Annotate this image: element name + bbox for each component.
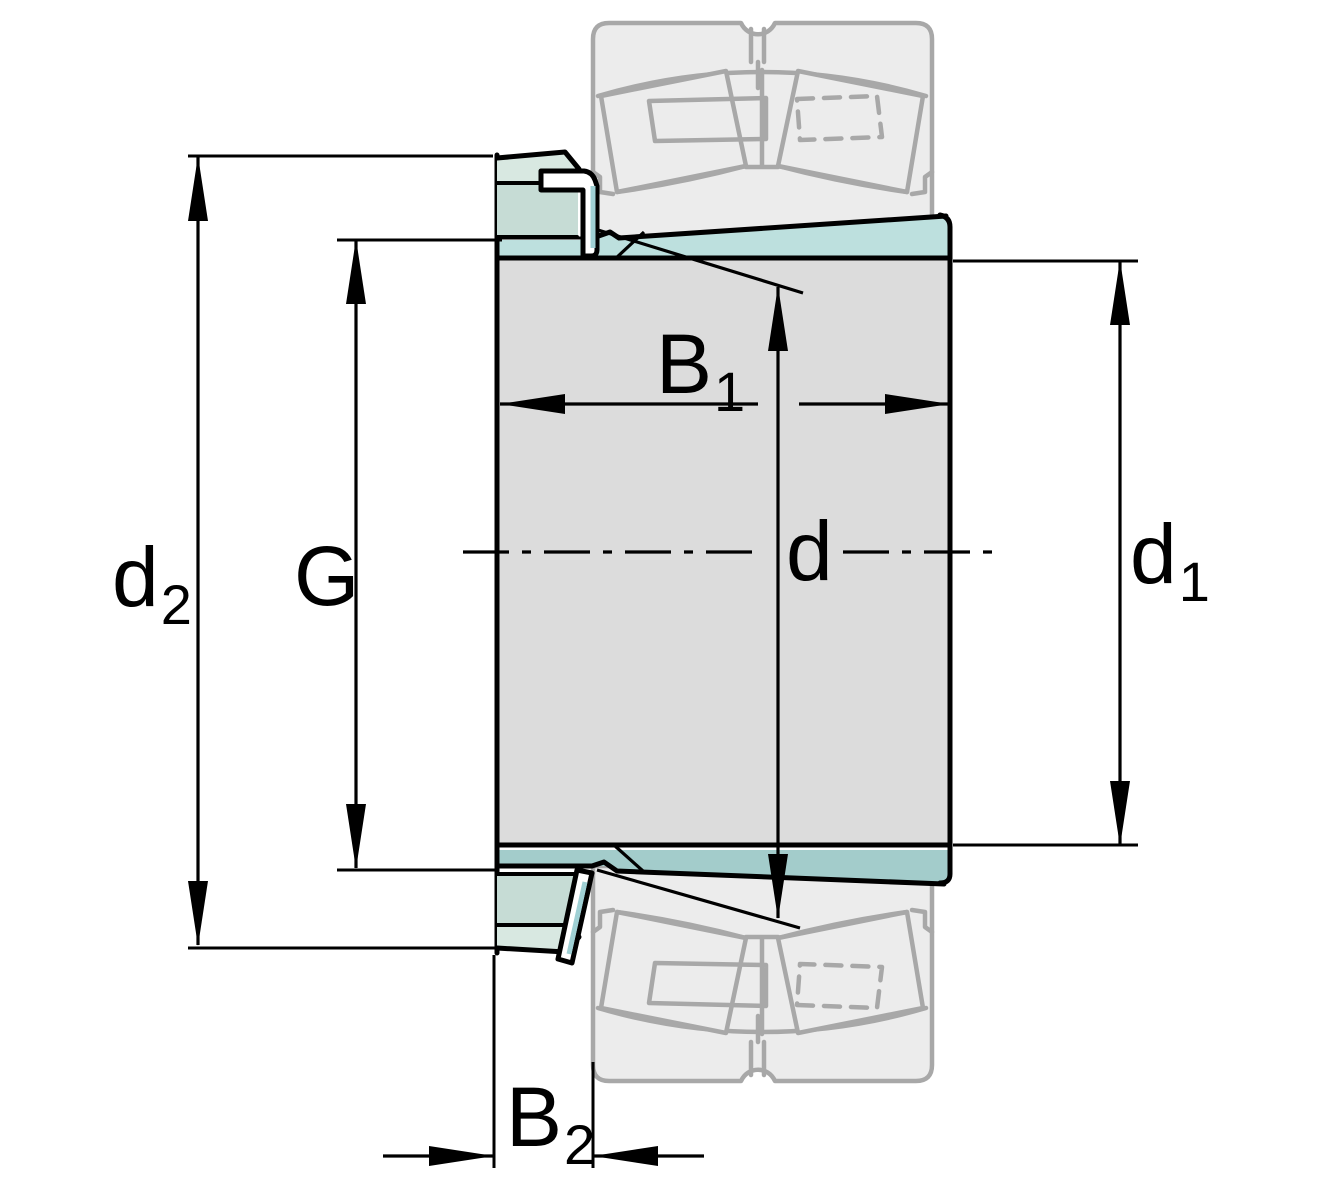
label-d: d — [786, 509, 835, 603]
label-B1: B1 — [656, 322, 745, 416]
adapter-sleeve-body — [497, 155, 950, 953]
dimension-G — [337, 239, 502, 870]
lock-nut-top — [497, 152, 579, 237]
bearing-ghost-bottom — [593, 866, 932, 1081]
label-G: G — [294, 534, 361, 628]
dimension-d1 — [953, 260, 1138, 846]
technical-drawing-canvas: d2 G B1 d d1 B2 — [0, 0, 1330, 1200]
label-d1: d1 — [1130, 512, 1210, 606]
bearing-ghost-top — [593, 23, 932, 238]
label-B2: B2 — [506, 1075, 595, 1169]
label-d2: d2 — [112, 535, 192, 629]
